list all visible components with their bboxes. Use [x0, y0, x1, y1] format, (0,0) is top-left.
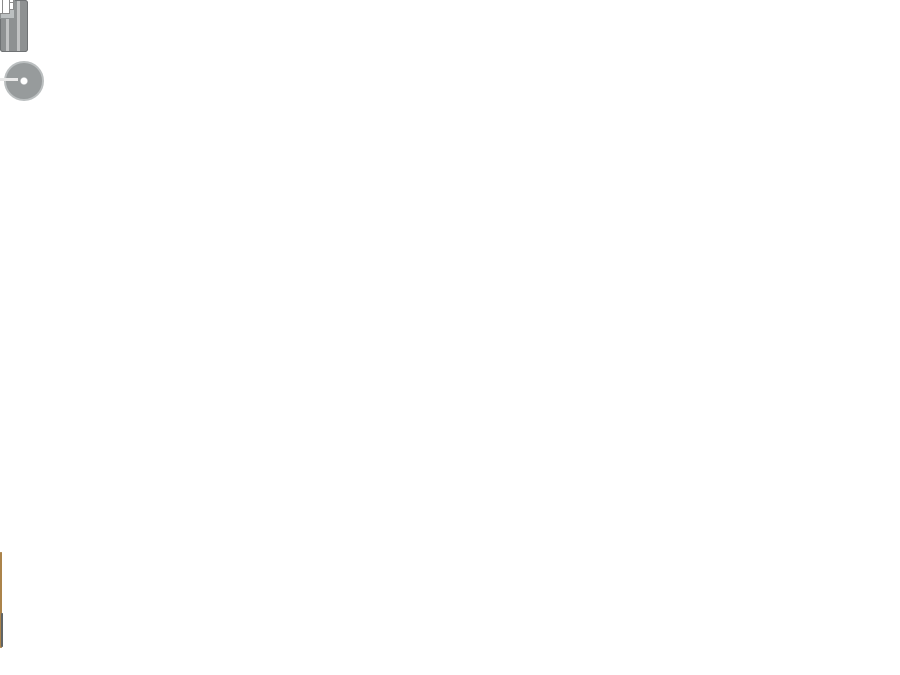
armchair-seat-cushion — [1, 613, 3, 647]
window-bottom-right — [0, 0, 2, 2]
floor-plan-canvas — [0, 0, 900, 675]
deck-armchair-right — [0, 552, 2, 648]
